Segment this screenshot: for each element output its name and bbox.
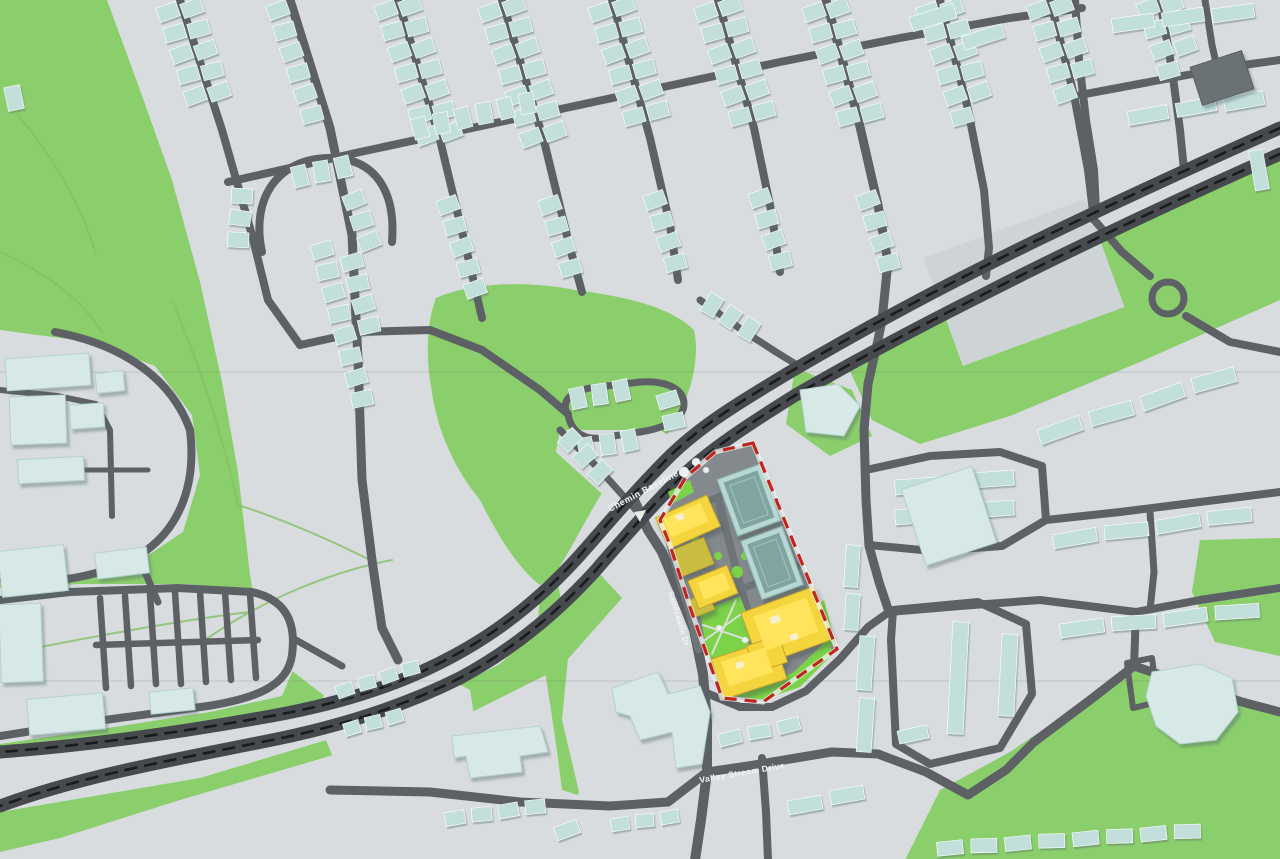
map-viewport[interactable]: Chemin BaselineSandcastle DrValley Strea…: [0, 0, 1280, 859]
map-canvas: Chemin BaselineSandcastle DrValley Strea…: [0, 0, 1280, 859]
tree: [703, 467, 709, 473]
tree: [716, 625, 722, 631]
tree: [742, 637, 748, 643]
